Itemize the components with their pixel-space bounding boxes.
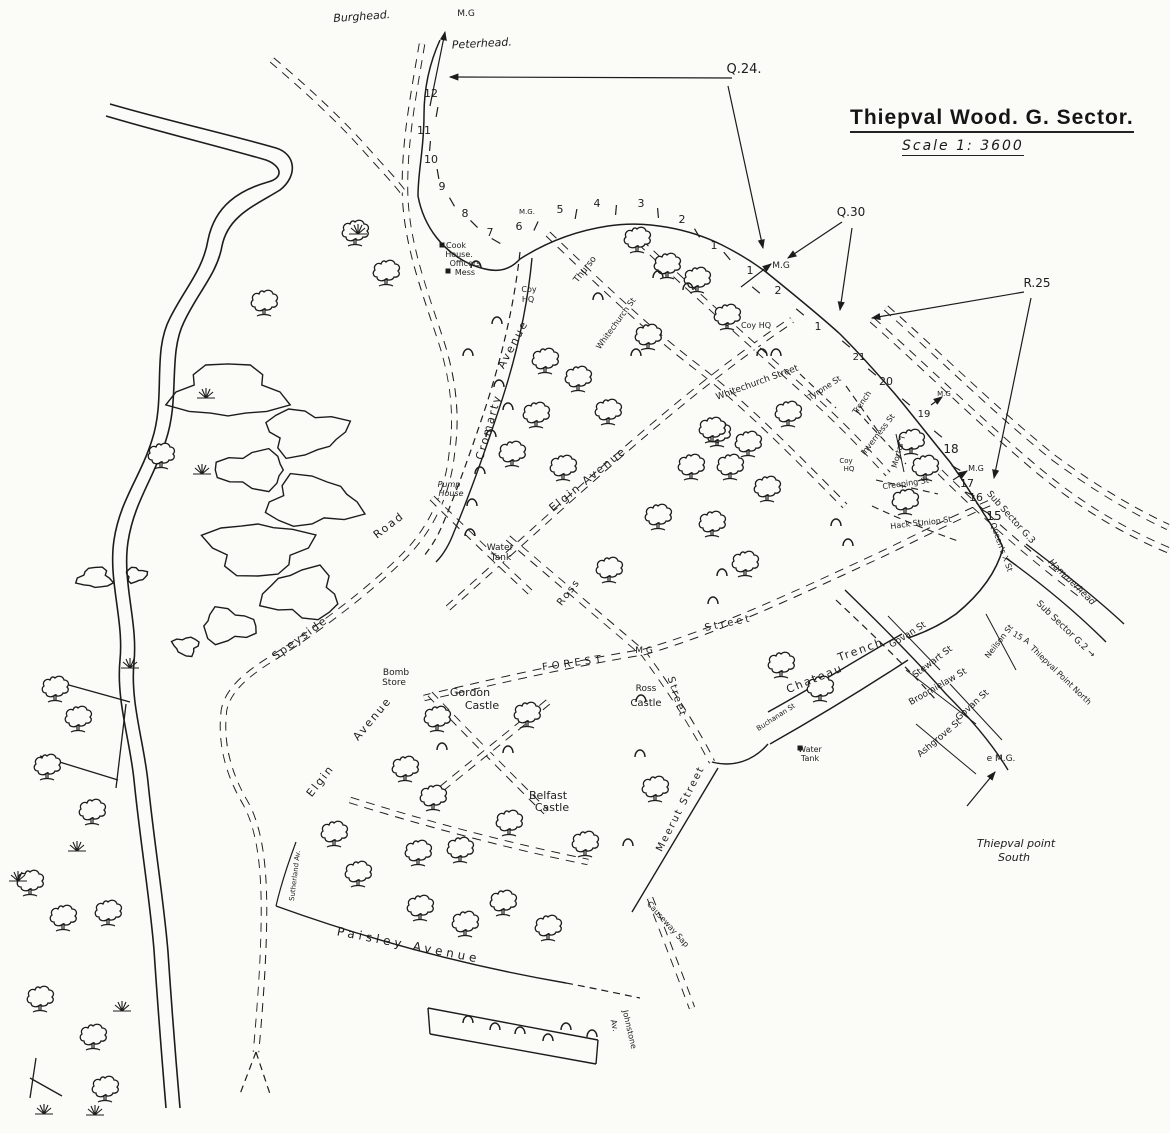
trench-line (428, 1008, 598, 1040)
map-label: Hammerhead (1046, 558, 1097, 608)
map-label: 19 (918, 409, 931, 420)
pointer-arrow (741, 264, 771, 287)
marsh-blob (266, 409, 351, 458)
tree-icon (645, 504, 671, 530)
tree-icon (420, 785, 446, 811)
tree-icon (732, 551, 758, 577)
map-label: 7 (487, 226, 494, 239)
tree-icon (523, 402, 549, 428)
shelter-icon (717, 569, 727, 576)
shelter-icon (543, 1034, 553, 1041)
marsh-blob (201, 524, 316, 576)
marsh-blob (126, 567, 147, 583)
pointer-arrow (840, 228, 852, 310)
map-label: 16 (969, 491, 983, 504)
trench-tick (575, 209, 577, 219)
map-label: Castle (535, 801, 570, 814)
shelter-icon (463, 349, 473, 356)
map-label: Street (665, 675, 689, 719)
tree-icon (452, 911, 478, 937)
shelter-icon (708, 597, 718, 604)
trench-tick (430, 141, 431, 151)
tree-icon (595, 399, 621, 425)
map-label: Trench (850, 389, 873, 417)
shelter-icon (561, 1023, 571, 1030)
shelter-icon (635, 750, 645, 757)
pointer-arrow (788, 222, 842, 258)
trench-tick (616, 205, 617, 215)
map-label: e M.G. (987, 754, 1016, 764)
map-label: Creeping St (882, 476, 930, 491)
shelter-icon (463, 1016, 473, 1023)
map-label: Q.30 (837, 205, 866, 219)
trench-dashed (256, 1052, 270, 1094)
map-label: 1 (711, 239, 718, 252)
marsh-blob (172, 637, 200, 656)
trench-map-canvas: Burghead.M.GPeterhead.Q.24.121110987M.G.… (0, 0, 1170, 1133)
marsh-blob (265, 474, 365, 527)
trench-line (712, 744, 768, 764)
tree-icon (535, 915, 561, 941)
map-label: 6 (516, 220, 523, 233)
map-label: M.G (772, 261, 790, 271)
map-label: Coy (839, 457, 852, 465)
trench-tick (842, 341, 850, 347)
grass-icon (113, 1001, 131, 1011)
map-label: 1 (747, 264, 754, 277)
tree-icon (754, 476, 780, 502)
map-label: Castle (465, 699, 500, 712)
pointer-arrow (967, 772, 995, 806)
pointer-arrow (450, 77, 732, 78)
map-label: Trench (835, 635, 886, 664)
tree-icon (92, 1076, 118, 1102)
map-label: 3 (638, 197, 645, 210)
map-label: 15 A (1011, 629, 1032, 646)
trench-line (430, 1034, 596, 1064)
tree-icon (321, 821, 347, 847)
map-label: 12 (424, 87, 438, 100)
tree-icon (373, 260, 399, 286)
map-label: Neilson St (983, 623, 1015, 660)
map-label: Ashgrove St (916, 717, 964, 760)
marsh-blob (260, 565, 338, 620)
shelter-icon (593, 293, 603, 300)
shelter-icon (467, 499, 477, 506)
map-label: Tyrone St (806, 374, 843, 402)
pointer-arrow (872, 292, 1024, 318)
trench-tick (492, 239, 501, 244)
map-label: Bomb (383, 668, 409, 678)
map-label: M.G. (519, 208, 535, 216)
tree-icon (27, 986, 53, 1012)
tree-icon (892, 489, 918, 515)
shelter-icon (771, 349, 781, 356)
tree-icon (532, 348, 558, 374)
shelter-icon (631, 349, 641, 356)
map-label: Tank (800, 754, 820, 763)
map-label: M G (635, 646, 653, 656)
tree-icon (635, 324, 661, 350)
map-label: Avenue (350, 694, 394, 743)
map-label: Castle (630, 698, 661, 709)
map-label: Govan St (888, 620, 929, 651)
grass-icon (35, 1104, 53, 1114)
tree-icon (148, 443, 174, 469)
trench-tick (534, 221, 538, 230)
trench-tick (436, 107, 438, 117)
grass-icon (121, 658, 139, 668)
trench-tick (934, 431, 942, 437)
trench-tick (437, 169, 439, 179)
map-label: Tank (490, 553, 512, 563)
tree-icon (490, 890, 516, 916)
map-label: HQ (844, 465, 855, 473)
map-label: M.G (457, 9, 475, 19)
tree-icon (405, 840, 431, 866)
map-label: R.25 (1024, 276, 1051, 290)
map-label: Elgin (304, 762, 337, 799)
map-label: Officers (450, 259, 481, 268)
trench-tick (658, 208, 659, 218)
map-label: Store (382, 678, 406, 688)
map-label: 17 (960, 477, 974, 490)
map-label: Pump (438, 480, 461, 489)
map-label: Mortar T (890, 434, 907, 469)
tree-icon (345, 861, 371, 887)
shelter-icon (843, 539, 853, 546)
tree-icon (424, 706, 450, 732)
tree-icon (565, 366, 591, 392)
map-label: Coy (521, 285, 536, 294)
tree-icon (65, 706, 91, 732)
map-label: 4 (594, 197, 601, 210)
pointer-arrow (931, 397, 942, 405)
trench-line (30, 1078, 62, 1096)
grass-icon (197, 388, 215, 398)
tree-icon (95, 900, 121, 926)
tree-icon (392, 756, 418, 782)
tree-icon (42, 676, 68, 702)
map-label: Cook (446, 241, 466, 250)
tree-icon (407, 895, 433, 921)
tree-icon (699, 511, 725, 537)
map-label: 10 (424, 153, 438, 166)
pointer-arrow (728, 86, 763, 248)
grass-icon (86, 1105, 104, 1115)
building-square (440, 243, 445, 248)
tree-icon (79, 799, 105, 825)
shelter-icon (831, 519, 841, 526)
tree-icon (80, 1024, 106, 1050)
map-label: Mess (455, 268, 475, 277)
map-label: Water (487, 543, 514, 553)
map-label: Av. (609, 1019, 620, 1032)
building-square (446, 269, 451, 274)
trench-line (596, 1040, 598, 1064)
map-label: Speyside (270, 614, 331, 663)
shelter-icon (503, 746, 513, 753)
map-label: 5 (557, 203, 564, 216)
map-title: Thiepval Wood. G. Sector. (850, 106, 1134, 133)
tree-icon (342, 220, 368, 246)
map-label: 1 (815, 320, 822, 333)
trench-tick (752, 287, 760, 293)
shelter-icon (587, 1030, 597, 1037)
trench-dashed (240, 1052, 256, 1094)
tree-icon (496, 810, 522, 836)
trench-tick (470, 220, 477, 227)
map-label: FOREST (542, 654, 606, 674)
trench-map: Burghead.M.GPeterhead.Q.24.121110987M.G.… (0, 0, 1170, 1133)
map-label: Govan St (954, 688, 992, 723)
map-label: Water (798, 745, 822, 754)
marsh-blob (76, 567, 114, 587)
tree-icon (50, 905, 76, 931)
trench-tick (695, 229, 700, 238)
shelter-icon (492, 317, 502, 324)
map-label: M.G (937, 390, 951, 398)
map-label: House (438, 489, 463, 498)
map-label: Buchanan St (755, 702, 797, 733)
tree-icon (34, 754, 60, 780)
map-label: 21 (853, 352, 866, 363)
tree-icon (735, 431, 761, 457)
tree-icon (642, 776, 668, 802)
map-label: Johnstone (620, 1008, 638, 1050)
shelter-icon (494, 380, 504, 387)
trench-tick (450, 198, 455, 207)
shelter-icon (490, 1023, 500, 1030)
marsh-blob (204, 607, 256, 645)
map-label: Peterhead. (452, 35, 513, 51)
tree-icon (768, 652, 794, 678)
marsh-blob (215, 449, 283, 492)
map-label: 2 (775, 284, 782, 297)
shelter-icon (437, 743, 447, 750)
trench-tick (724, 252, 730, 260)
shelter-icon (623, 839, 633, 846)
map-label: Burghead. (333, 8, 391, 25)
map-label: Cromarty (473, 393, 504, 461)
map-scale: Scale 1: 3600 (902, 138, 1024, 156)
map-label: 18 (943, 442, 958, 456)
map-label: Gordon (450, 686, 490, 699)
trench-dashed (566, 983, 640, 998)
tree-icon (550, 455, 576, 481)
map-label: House. (445, 250, 473, 259)
map-label: Whitechurch Street (715, 363, 801, 402)
trench-line (428, 1008, 430, 1034)
map-label: Ross (636, 684, 657, 694)
map-label: 11 (417, 124, 431, 137)
tree-icon (714, 304, 740, 330)
trench-line (116, 704, 126, 788)
map-label: Street (704, 613, 754, 634)
grass-icon (68, 841, 86, 851)
tree-icon (447, 837, 473, 863)
map-label: Thiepval point (977, 837, 1056, 850)
map-label: M.G (968, 464, 984, 473)
tree-icon (251, 290, 277, 316)
shelter-icon (503, 403, 513, 410)
shelter-icon (515, 1027, 525, 1034)
map-label: South (998, 851, 1030, 864)
map-label: Whitechurch St (594, 296, 637, 351)
marsh-blob (166, 364, 290, 416)
map-label: 9 (439, 180, 446, 193)
tree-icon (678, 454, 704, 480)
map-label: HQ (522, 295, 534, 304)
map-label: Q.24. (726, 62, 761, 77)
tree-icon (499, 441, 525, 467)
tree-icon (596, 557, 622, 583)
tree-icon (572, 831, 598, 857)
map-label: 2 (679, 213, 686, 226)
map-label: Coy HQ (741, 321, 771, 330)
map-label: 8 (462, 207, 469, 220)
map-label: Elgin Avenue (547, 444, 629, 514)
tree-icon (775, 401, 801, 427)
map-label: Road (371, 509, 407, 541)
tree-icon (717, 454, 743, 480)
grass-icon (193, 464, 211, 474)
trench-tick (796, 309, 804, 315)
map-label: 20 (879, 375, 893, 388)
